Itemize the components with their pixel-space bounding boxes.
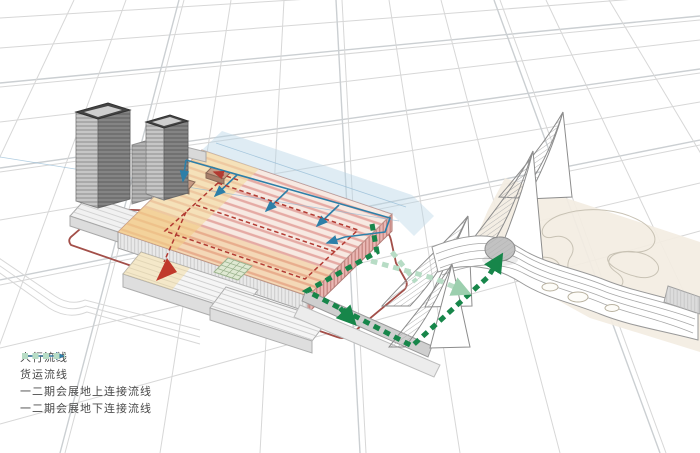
- legend-label-above-ground-link: 一二期会展地上连接流线: [20, 383, 152, 399]
- canopy-pond: [568, 292, 588, 302]
- circulation-diagram: 人行流线 货运流线 一二期会展地上连接流线 一二期会展地下连接流线: [0, 0, 700, 453]
- legend-item-above-ground-link: 一二期会展地上连接流线: [20, 384, 152, 397]
- legend: 人行流线 货运流线 一二期会展地上连接流线 一二期会展地下连接流线: [20, 350, 152, 414]
- office-towers: [76, 103, 206, 208]
- legend-label-freight: 货运流线: [20, 366, 68, 382]
- legend-item-freight: 货运流线: [20, 367, 152, 380]
- canopy-pond: [542, 283, 558, 291]
- legend-item-underground-link: 一二期会展地下连接流线: [20, 401, 152, 414]
- underground-line-symbol: [20, 350, 66, 362]
- tower-short: [146, 115, 188, 200]
- legend-label-underground-link: 一二期会展地下连接流线: [20, 400, 152, 416]
- exhibition-hall-phase2: [0, 131, 440, 377]
- canopy-pond: [605, 305, 619, 312]
- tower-tall: [76, 103, 130, 208]
